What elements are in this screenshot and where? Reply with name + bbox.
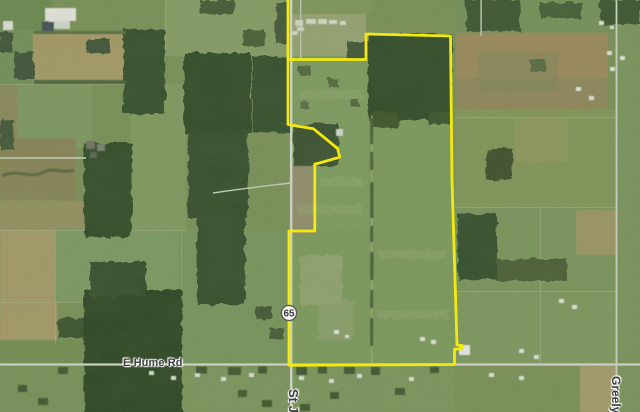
svg-text:65: 65: [283, 309, 295, 320]
